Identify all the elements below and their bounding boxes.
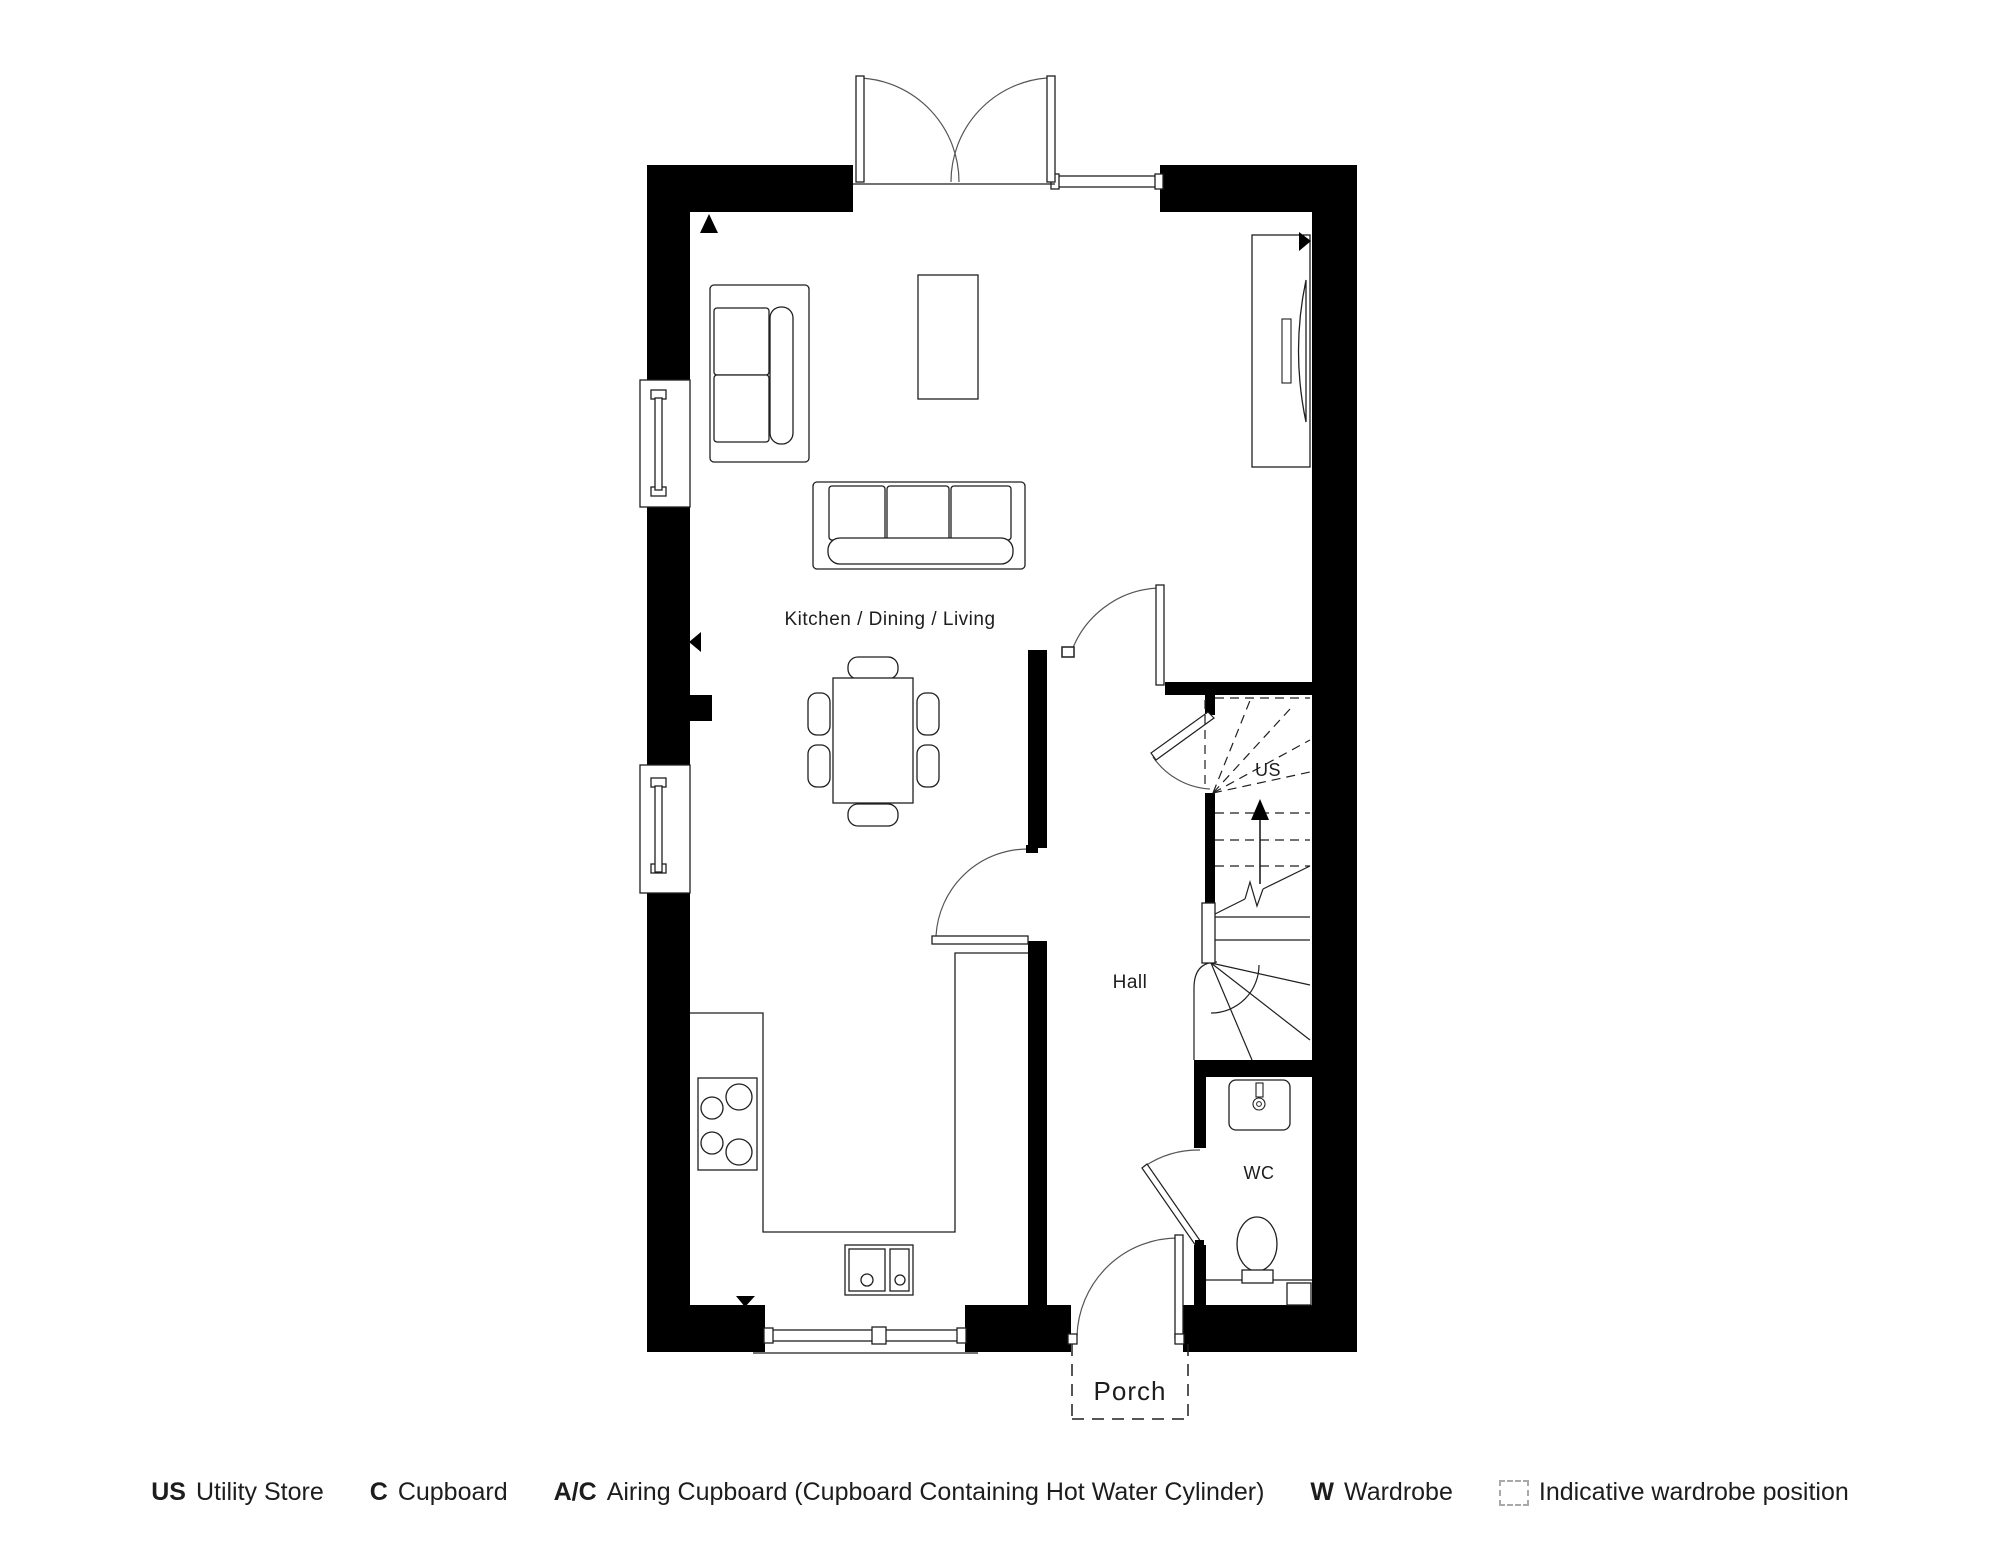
french-door-leaf-right	[1047, 76, 1055, 182]
stair-newel-post	[1202, 903, 1215, 963]
dining-set	[808, 657, 939, 826]
french-door-leaf-left	[856, 76, 864, 182]
legend: US Utility Store C Cupboard A/C Airing C…	[0, 1478, 2000, 1507]
french-doors	[853, 76, 1055, 184]
window-bottom-kitchen	[753, 1327, 978, 1353]
legend-item-cupboard: C Cupboard	[370, 1478, 508, 1507]
hob-icon	[698, 1078, 757, 1170]
dining-chair	[808, 745, 830, 787]
level-marker-left-icon	[689, 632, 701, 652]
floorplan-page: Kitchen / Dining / Living Hall US WC Por…	[0, 0, 2000, 1561]
label-porch: Porch	[1094, 1376, 1167, 1406]
legend-item-utility-store: US Utility Store	[151, 1478, 324, 1507]
legend-item-airing-cupboard: A/C Airing Cupboard (Cupboard Containing…	[554, 1478, 1265, 1507]
staircase-upper-flight-dashed	[1205, 698, 1310, 866]
dining-chair	[808, 693, 830, 735]
legend-item-indicative-wardrobe: Indicative wardrobe position	[1499, 1478, 1849, 1507]
stairs-up-arrow-icon	[1251, 799, 1269, 884]
legend-item-wardrobe: W Wardrobe	[1310, 1478, 1452, 1507]
toilet-icon	[1206, 1217, 1312, 1305]
label-wc: WC	[1244, 1163, 1275, 1183]
ground-floor-plan: Kitchen / Dining / Living Hall US WC Por…	[0, 0, 2000, 1561]
kitchen-counter	[690, 953, 1028, 1295]
dining-chair	[917, 745, 939, 787]
dining-table	[833, 678, 913, 803]
dining-chair	[848, 804, 898, 826]
window-top-right	[1051, 174, 1163, 189]
indicative-wardrobe-icon	[1499, 1480, 1529, 1506]
coffee-table	[918, 275, 978, 399]
basin-icon	[1229, 1080, 1290, 1130]
label-hall: Hall	[1113, 972, 1148, 993]
window-left-upper	[640, 380, 690, 507]
label-us: US	[1255, 760, 1281, 780]
sofa-2-seat	[710, 285, 809, 462]
door-wc	[1142, 1150, 1204, 1248]
door-hall-to-kitchen	[932, 845, 1038, 944]
wc-fixtures	[1206, 1080, 1312, 1305]
sink-icon	[845, 1245, 913, 1295]
window-left-lower	[640, 765, 690, 893]
dining-chair	[848, 657, 898, 679]
label-kitchen-dining-living: Kitchen / Dining / Living	[784, 609, 995, 630]
level-marker-top-icon	[700, 214, 718, 233]
sofa-3-seat	[813, 482, 1025, 569]
dining-chair	[917, 693, 939, 735]
front-door	[1068, 1235, 1184, 1344]
tv-unit	[1252, 235, 1310, 467]
door-living-to-hall	[1062, 585, 1164, 685]
